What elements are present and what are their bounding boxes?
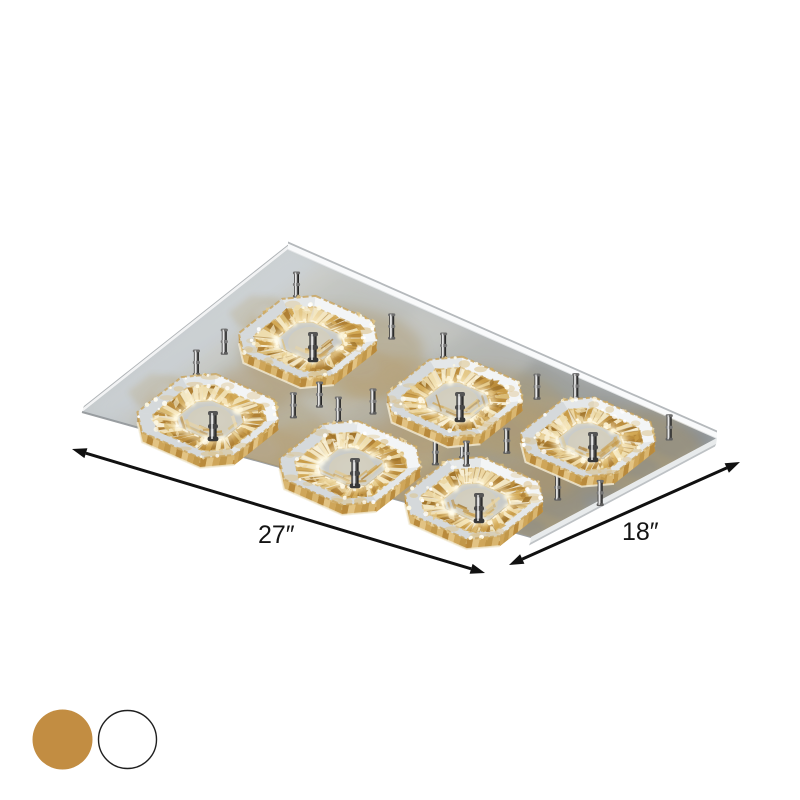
svg-text:18″: 18″ — [622, 518, 659, 546]
svg-text:27″: 27″ — [258, 521, 295, 549]
